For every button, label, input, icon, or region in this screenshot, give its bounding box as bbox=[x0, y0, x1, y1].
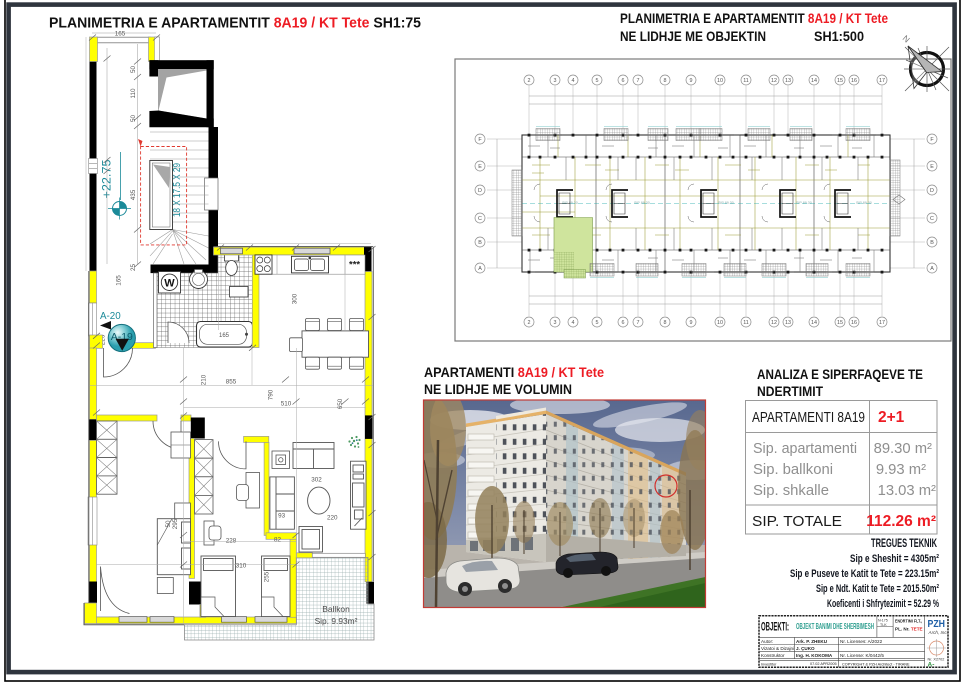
svg-text:C: C bbox=[478, 216, 482, 222]
svg-text:6: 6 bbox=[622, 320, 625, 326]
svg-text:14: 14 bbox=[811, 78, 817, 84]
svg-text:12: 12 bbox=[771, 320, 777, 326]
svg-text:16: 16 bbox=[851, 78, 857, 84]
svg-text:OBJEKT BANIMI DHE SHERBIMESH: OBJEKT BANIMI DHE SHERBIMESH bbox=[796, 621, 874, 631]
svg-text:7: 7 bbox=[637, 320, 640, 326]
svg-text:110: 110 bbox=[130, 88, 137, 99]
svg-text:2+1: 2+1 bbox=[878, 409, 905, 426]
svg-text:5: 5 bbox=[596, 78, 599, 84]
svg-text:Ing. H. KOKOMA: Ing. H. KOKOMA bbox=[796, 653, 833, 658]
svg-text:82: 82 bbox=[274, 537, 282, 544]
svg-text:D: D bbox=[930, 188, 934, 194]
svg-text:855: 855 bbox=[226, 379, 237, 386]
svg-text:A: A bbox=[478, 266, 482, 272]
svg-text:255: 255 bbox=[264, 571, 271, 582]
svg-text:10: 10 bbox=[717, 78, 723, 84]
svg-text:112.26 m²: 112.26 m² bbox=[866, 513, 936, 530]
svg-text:Sip. apartamenti: Sip. apartamenti bbox=[753, 441, 857, 457]
svg-text:17: 17 bbox=[879, 320, 885, 326]
svg-text:4: 4 bbox=[572, 78, 575, 84]
svg-text:13: 13 bbox=[785, 320, 791, 326]
svg-text:APARTAMENTI 8A19: APARTAMENTI 8A19 bbox=[752, 409, 865, 426]
svg-text:650: 650 bbox=[337, 398, 344, 409]
svg-text:510: 510 bbox=[281, 401, 292, 408]
svg-text:Arch, Inc.: Arch, Inc. bbox=[928, 630, 948, 635]
svg-text:TREGUES TEKNIK: TREGUES TEKNIK bbox=[871, 536, 937, 550]
svg-text:16: 16 bbox=[851, 320, 857, 326]
svg-text:50: 50 bbox=[130, 115, 137, 123]
svg-text:25: 25 bbox=[130, 264, 137, 272]
svg-text:18 X 17.5 X 29: 18 X 17.5 X 29 bbox=[172, 163, 183, 217]
svg-text:APARTAMENTI 8A19 / KT Tete: APARTAMENTI 8A19 / KT Tete bbox=[424, 365, 604, 380]
svg-text:6: 6 bbox=[622, 78, 625, 84]
svg-text:50: 50 bbox=[130, 66, 137, 74]
svg-text:302: 302 bbox=[311, 477, 322, 484]
svg-text:15: 15 bbox=[837, 78, 843, 84]
svg-text:Ballkon: Ballkon bbox=[322, 604, 350, 614]
svg-text:Sip. ballkoni: Sip. ballkoni bbox=[753, 462, 833, 478]
svg-text:D: D bbox=[478, 188, 482, 194]
svg-text:11: 11 bbox=[743, 320, 749, 326]
svg-text:SIP 89.30: SIP 89.30 bbox=[856, 201, 872, 205]
svg-text:PL. Nr. TETE: PL. Nr. TETE bbox=[895, 627, 923, 632]
svg-text:165: 165 bbox=[219, 333, 230, 339]
svg-text:93: 93 bbox=[278, 513, 286, 520]
svg-text:295: 295 bbox=[172, 518, 179, 529]
svg-text:15: 15 bbox=[837, 320, 843, 326]
svg-text:11: 11 bbox=[743, 78, 749, 84]
svg-text:SIP. TOTALE: SIP. TOTALE bbox=[752, 513, 842, 530]
svg-text:17: 17 bbox=[879, 78, 885, 84]
svg-text:Sip e Puseve te Katit te Tete: Sip e Puseve te Katit te Tete = 223.15m² bbox=[790, 568, 939, 580]
svg-text:Koeficenti i Shfrytezimit = 52: Koeficenti i Shfrytezimit = 52.29 % bbox=[827, 598, 939, 610]
svg-text:8: 8 bbox=[664, 320, 667, 326]
svg-text:2: 2 bbox=[528, 320, 531, 326]
svg-text:9.93 m²: 9.93 m² bbox=[876, 462, 926, 478]
svg-text:228: 228 bbox=[226, 538, 237, 545]
svg-text:210: 210 bbox=[201, 374, 208, 385]
svg-text:2: 2 bbox=[528, 78, 531, 84]
svg-text:Nr. License: K/0442/5: Nr. License: K/0442/5 bbox=[840, 653, 884, 658]
svg-text:SIP 89.30: SIP 89.30 bbox=[718, 201, 734, 205]
svg-text:4: 4 bbox=[572, 320, 575, 326]
svg-text:8: 8 bbox=[664, 78, 667, 84]
svg-text:5: 5 bbox=[596, 320, 599, 326]
svg-text:ENDRTIMI FLT.,: ENDRTIMI FLT., bbox=[895, 619, 922, 624]
svg-text:Autor:: Autor: bbox=[761, 639, 773, 644]
svg-text:Sip e Sheshit = 4305m²: Sip e Sheshit = 4305m² bbox=[850, 553, 939, 565]
svg-text:E: E bbox=[930, 164, 934, 170]
svg-text:NDERTIMIT: NDERTIMIT bbox=[757, 384, 824, 399]
svg-text:Investitor: Investitor bbox=[761, 663, 777, 667]
svg-text:Konstruktor: Konstruktor bbox=[761, 653, 785, 658]
svg-text:B: B bbox=[478, 240, 482, 246]
svg-text:N-175: N-175 bbox=[878, 619, 888, 623]
svg-text:C: C bbox=[930, 216, 934, 222]
svg-text:Ark. P. ZHEKU: Ark. P. ZHEKU bbox=[796, 639, 828, 644]
svg-text:3: 3 bbox=[554, 78, 557, 84]
svg-text:A-: A- bbox=[928, 662, 935, 669]
svg-text:Nr. Licenses: A/2022: Nr. Licenses: A/2022 bbox=[840, 639, 883, 644]
svg-text:220: 220 bbox=[327, 515, 338, 522]
svg-text:89.30 m²: 89.30 m² bbox=[874, 441, 932, 457]
svg-text:NE LIDHJE ME OBJEKTIN: NE LIDHJE ME OBJEKTIN bbox=[620, 29, 766, 44]
svg-text:9: 9 bbox=[690, 78, 693, 84]
svg-text:W: W bbox=[164, 277, 175, 289]
svg-text:TLK: TLK bbox=[880, 623, 887, 627]
svg-text:A: A bbox=[930, 266, 934, 272]
svg-text:PZH: PZH bbox=[928, 618, 946, 630]
svg-text:PLANIMETRIA E APARTAMENTIT 8A1: PLANIMETRIA E APARTAMENTIT 8A19 / KT Tet… bbox=[620, 11, 888, 26]
svg-text:***: *** bbox=[349, 260, 360, 271]
svg-text:PLANIMETRIA E APARTAMENTIT 8A1: PLANIMETRIA E APARTAMENTIT 8A19 / KT Tet… bbox=[49, 15, 422, 32]
svg-text:+22.75: +22.75 bbox=[100, 159, 114, 198]
svg-text:ANALIZA E SIPERFAQEVE TE: ANALIZA E SIPERFAQEVE TE bbox=[757, 367, 923, 382]
svg-text:9: 9 bbox=[690, 320, 693, 326]
svg-text:COPYRIGHT & PZH Architect - TI: COPYRIGHT & PZH Architect - TIRANE bbox=[842, 663, 910, 667]
svg-text:50: 50 bbox=[165, 520, 172, 528]
svg-text:13.03 m²: 13.03 m² bbox=[878, 483, 936, 499]
svg-text:310: 310 bbox=[236, 563, 247, 570]
svg-text:165: 165 bbox=[116, 275, 123, 286]
svg-text:Vizatoi & Dizajni: Vizatoi & Dizajni bbox=[761, 646, 794, 651]
svg-text:E: E bbox=[478, 164, 482, 170]
svg-text:12: 12 bbox=[771, 78, 777, 84]
svg-text:07.02 APR2005: 07.02 APR2005 bbox=[810, 662, 837, 666]
svg-text:Sip e Ndt. Katit te Tete = 201: Sip e Ndt. Katit te Tete = 2015.50m² bbox=[816, 583, 939, 595]
svg-text:Sip. 9.93m²: Sip. 9.93m² bbox=[315, 616, 358, 626]
svg-text:SIP 89.30: SIP 89.30 bbox=[634, 201, 650, 205]
svg-text:SIP 89.30: SIP 89.30 bbox=[796, 201, 812, 205]
svg-text:10: 10 bbox=[717, 320, 723, 326]
svg-text:3: 3 bbox=[554, 320, 557, 326]
svg-text:Sip. shkalle: Sip. shkalle bbox=[753, 483, 829, 499]
svg-text:435: 435 bbox=[130, 189, 137, 200]
svg-text:790: 790 bbox=[268, 389, 275, 400]
svg-text:OBJEKTI:: OBJEKTI: bbox=[761, 620, 789, 634]
svg-text:165: 165 bbox=[115, 31, 126, 38]
svg-text:SH1:500: SH1:500 bbox=[814, 29, 864, 44]
svg-text:13: 13 bbox=[785, 78, 791, 84]
svg-text:300: 300 bbox=[292, 293, 299, 304]
svg-text:J. ÇUKO: J. ÇUKO bbox=[796, 646, 815, 651]
svg-text:A-20: A-20 bbox=[100, 311, 121, 322]
svg-text:14: 14 bbox=[811, 320, 817, 326]
svg-text:7: 7 bbox=[637, 78, 640, 84]
svg-text:B: B bbox=[930, 240, 934, 246]
svg-text:NE LIDHJE ME VOLUMIN: NE LIDHJE ME VOLUMIN bbox=[424, 382, 572, 397]
